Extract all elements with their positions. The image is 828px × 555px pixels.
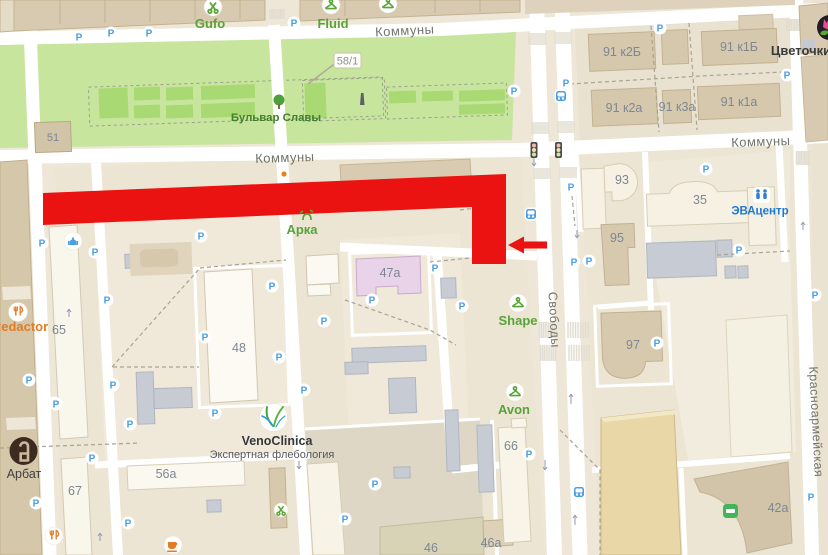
svg-text:Коммуны: Коммуны [375,21,435,39]
svg-text:P: P [291,19,298,30]
svg-text:P: P [571,258,578,269]
svg-text:66: 66 [504,439,518,453]
svg-text:48: 48 [232,341,246,355]
svg-text:P: P [342,515,349,526]
svg-text:91 к2а: 91 к2а [606,101,643,115]
svg-text:Бульвар Славы: Бульвар Славы [231,112,321,124]
svg-text:P: P [563,79,570,90]
svg-text:P: P [736,246,743,257]
svg-text:47а: 47а [380,266,401,280]
svg-text:91 к1Б: 91 к1Б [720,40,758,54]
svg-text:P: P [321,317,328,328]
svg-text:P: P [808,493,815,504]
svg-text:P: P [432,264,439,275]
svg-text:Свободы: Свободы [546,291,563,348]
svg-text:P: P [202,333,209,344]
svg-text:P: P [276,353,283,364]
svg-text:P: P [53,400,60,411]
svg-text:93: 93 [615,173,629,187]
svg-text:P: P [301,386,308,397]
svg-text:ЭВАцентр: ЭВАцентр [731,206,788,218]
svg-text:Shape: Shape [498,313,537,328]
svg-text:P: P [372,480,379,491]
svg-text:P: P [657,24,664,35]
svg-text:56а: 56а [156,467,177,481]
svg-text:P: P [146,29,153,40]
svg-text:Коммуны: Коммуны [255,149,315,166]
svg-text:P: P [511,87,518,98]
svg-text:51: 51 [47,132,59,144]
svg-text:P: P [89,454,96,465]
svg-text:Коммуны: Коммуны [731,133,791,150]
svg-text:P: P [269,282,276,293]
svg-text:P: P [198,232,205,243]
svg-text:P: P [26,376,33,387]
svg-text:P: P [39,239,46,250]
svg-text:P: P [108,29,115,40]
svg-text:P: P [110,381,117,392]
svg-text:Арка: Арка [286,222,318,237]
svg-text:VenoClinica: VenoClinica [242,434,314,448]
svg-text:P: P [125,519,132,530]
svg-text:P: P [369,296,376,307]
svg-text:P: P [92,248,99,259]
svg-text:P: P [127,420,134,431]
svg-text:Экспертная флебология: Экспертная флебология [210,449,335,461]
svg-text:Gufo: Gufo [195,16,225,31]
svg-text:46: 46 [424,541,438,555]
svg-text:91 к2Б: 91 к2Б [603,45,641,59]
svg-text:P: P [526,450,533,461]
svg-text:P: P [654,339,661,350]
svg-text:P: P [784,71,791,82]
svg-text:58/1: 58/1 [337,56,358,68]
svg-text:P: P [104,296,111,307]
svg-text:P: P [586,257,593,268]
svg-text:65: 65 [52,323,66,337]
svg-text:42а: 42а [768,501,789,515]
svg-text:Redactor: Redactor [0,319,48,334]
svg-text:P: P [568,183,575,194]
svg-text:67: 67 [68,484,82,498]
svg-text:P: P [212,409,219,420]
svg-text:P: P [703,165,710,176]
svg-text:Арбат: Арбат [7,467,42,481]
svg-text:97: 97 [626,338,640,352]
svg-text:P: P [33,499,40,510]
svg-text:95: 95 [610,231,624,245]
svg-text:P: P [76,33,83,44]
svg-text:91 к3а: 91 к3а [659,100,696,114]
svg-text:Цветочки: Цветочки [771,43,828,58]
svg-text:Avon: Avon [498,402,530,417]
svg-text:91 к1а: 91 к1а [721,95,758,109]
svg-text:35: 35 [693,193,707,207]
svg-text:P: P [459,302,466,313]
svg-text:P: P [812,291,819,302]
svg-text:46а: 46а [481,536,502,550]
svg-text:Fluid: Fluid [317,16,348,31]
